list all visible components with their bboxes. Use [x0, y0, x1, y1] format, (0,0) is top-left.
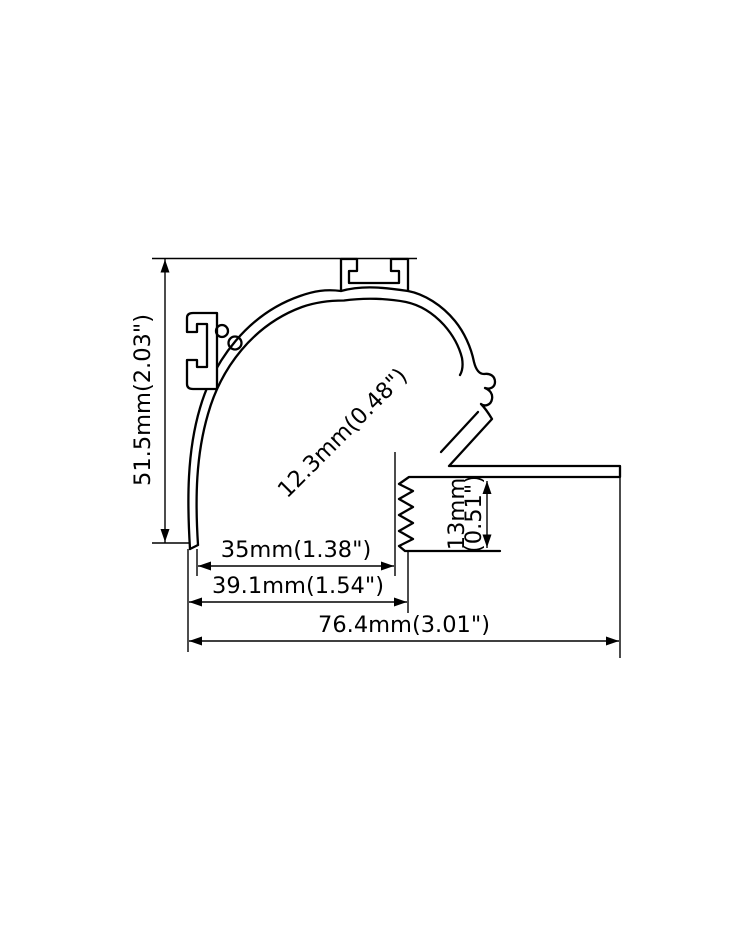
- dim-label-overall-width: 76.4mm(3.01"): [318, 612, 490, 638]
- arrowhead: [394, 598, 407, 607]
- profile-bottom-tip: [190, 545, 198, 549]
- drawing-canvas: 12.3mm(0.48") 51.5mm(2.03") 35mm(1.38") …: [0, 0, 750, 930]
- arrowhead: [189, 637, 202, 646]
- technical-drawing: 12.3mm(0.48") 51.5mm(2.03") 35mm(1.38") …: [0, 0, 750, 930]
- arrowhead: [161, 529, 170, 542]
- inner-diagonal-edge: [441, 412, 478, 452]
- arrowhead: [381, 562, 394, 571]
- dim-label-led-slot: 12.3mm(0.48"): [273, 363, 413, 503]
- dim-label-recess-width: 39.1mm(1.54"): [212, 573, 384, 599]
- arrowhead: [161, 260, 170, 273]
- wall-clip-bracket: [187, 313, 217, 389]
- arrowhead: [189, 598, 202, 607]
- dim-label-height: 51.5mm(2.03"): [130, 314, 156, 486]
- dim-label-wall-in: (0.51"): [461, 475, 487, 553]
- arrowhead: [606, 637, 619, 646]
- dimension-overall-width: 76.4mm(3.01"): [188, 478, 620, 658]
- mounting-slot: [341, 259, 408, 291]
- arrowhead: [198, 562, 211, 571]
- dimension-wall-thickness: 13mm (0.51"): [444, 475, 492, 553]
- profile-outline: [187, 259, 620, 551]
- dim-label-inner-width: 35mm(1.38"): [221, 537, 371, 563]
- profile-outer-contour: [188, 287, 620, 551]
